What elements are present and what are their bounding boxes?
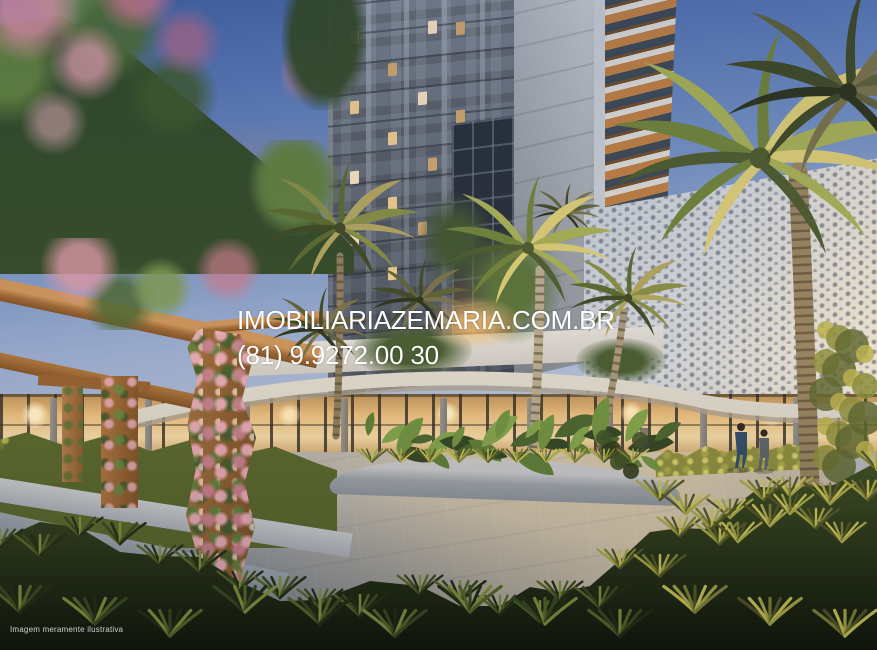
real-estate-listing-photo: IMOBILIARIAZEMARIA.COM.BR (81) 9.9272.00… [0, 0, 877, 650]
disclaimer-watermark: Imagem meramente ilustrativa [10, 625, 123, 634]
agency-website: IMOBILIARIAZEMARIA.COM.BR [237, 303, 615, 338]
agency-contact-overlay: IMOBILIARIAZEMARIA.COM.BR (81) 9.9272.00… [237, 233, 265, 373]
agency-phone: (81) 9.9272.00 30 [237, 338, 439, 373]
